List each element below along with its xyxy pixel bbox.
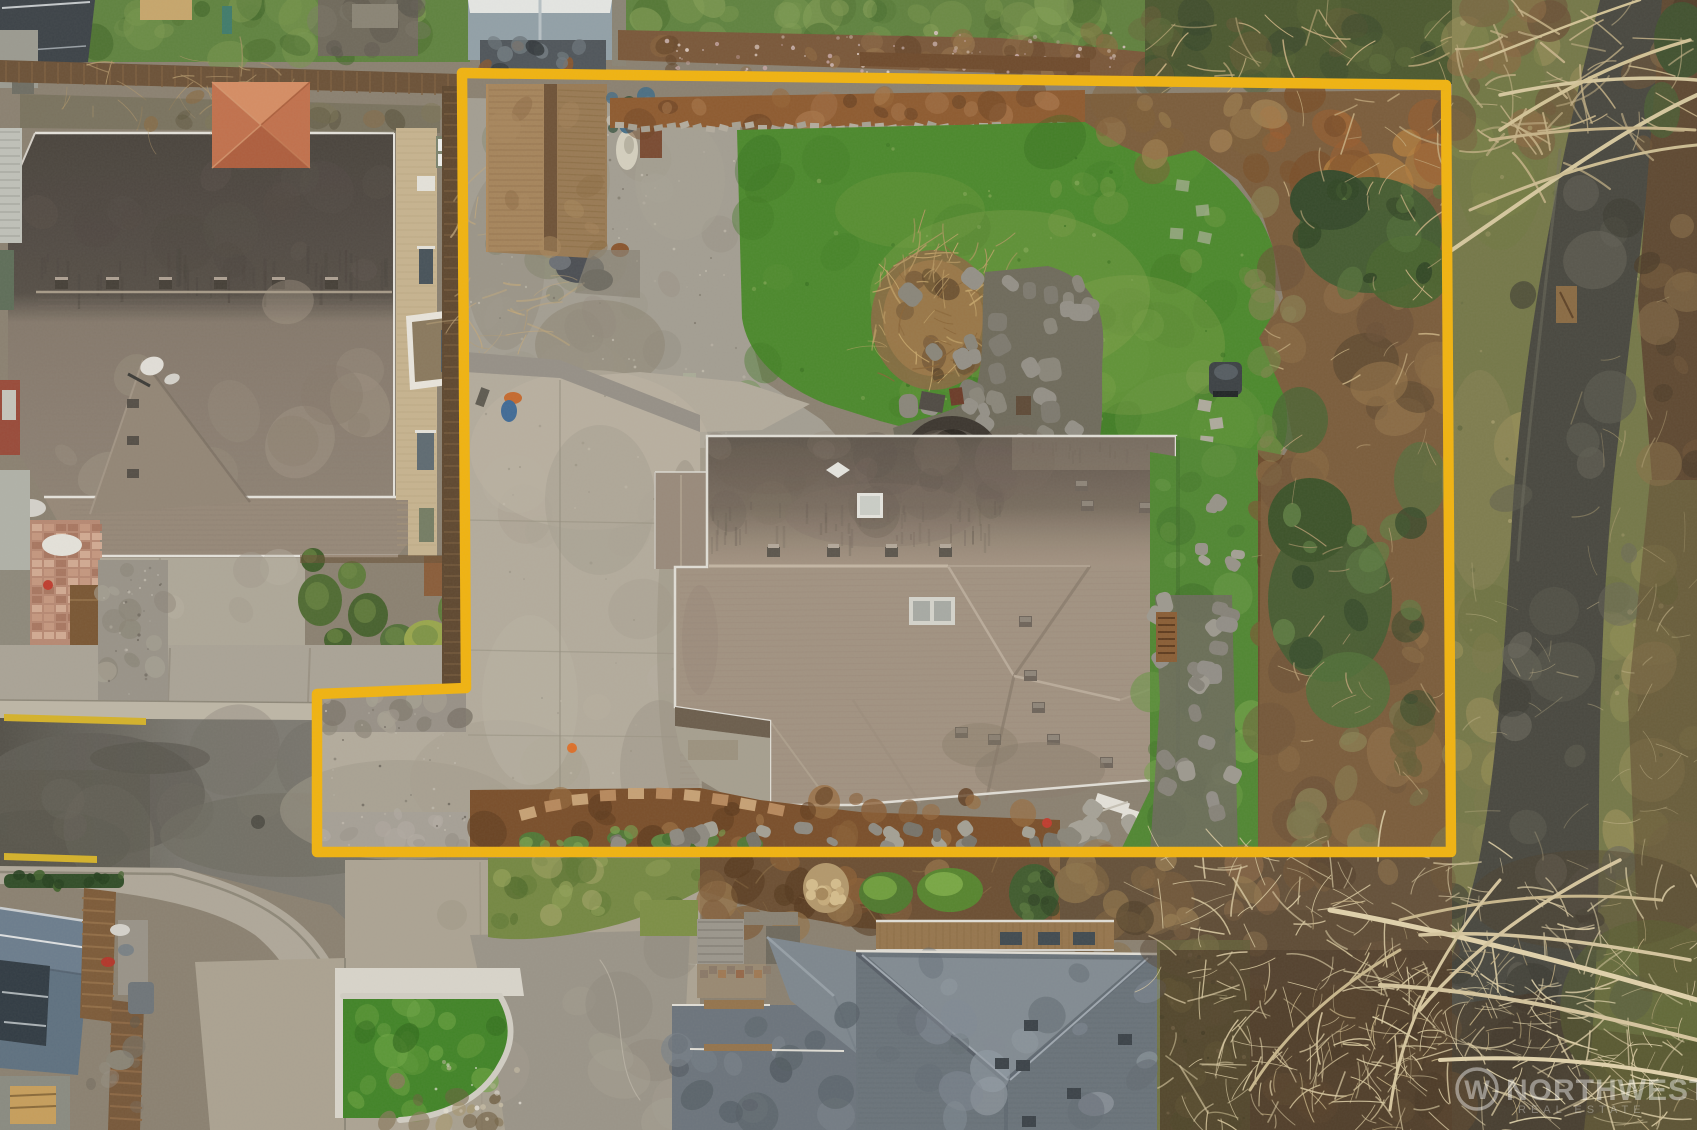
svg-text:NORTHWEST: NORTHWEST — [1506, 1074, 1697, 1107]
svg-text:W: W — [1464, 1075, 1490, 1105]
svg-text:REAL ESTATE: REAL ESTATE — [1518, 1104, 1646, 1116]
